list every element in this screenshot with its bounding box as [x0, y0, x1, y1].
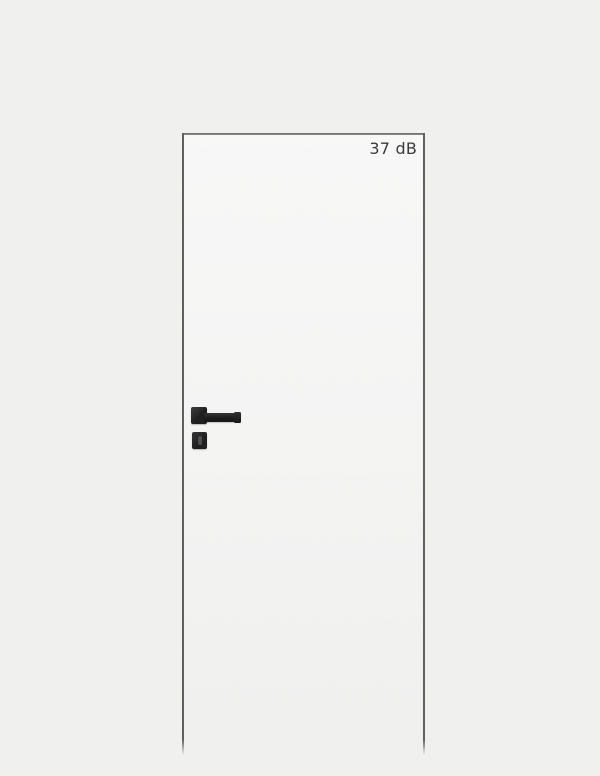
handle-lever-icon — [204, 413, 241, 422]
door-edge-top — [182, 133, 425, 135]
door-edge-left — [182, 133, 184, 755]
keyhole-slot-icon — [198, 436, 202, 445]
door-product-photo: 37 dB — [0, 0, 600, 776]
acoustic-rating-label: 37 dB — [369, 139, 417, 158]
door: 37 dB — [182, 133, 425, 755]
door-edge-right — [423, 133, 425, 755]
keyhole-escutcheon — [192, 432, 207, 449]
